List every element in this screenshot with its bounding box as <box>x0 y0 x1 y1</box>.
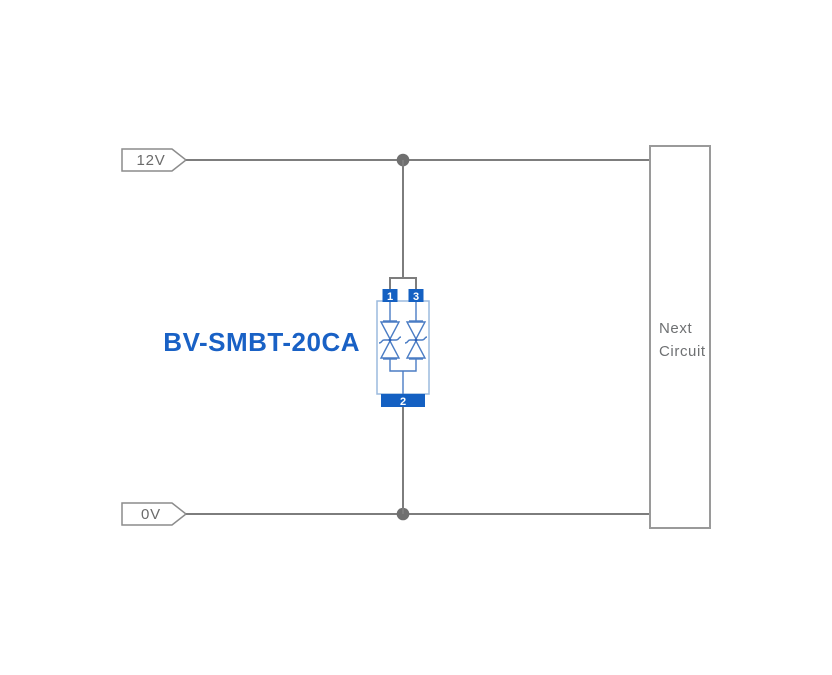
diode-center-node <box>415 339 418 342</box>
next-circuit-label-line1: Next <box>659 320 692 337</box>
diode-center-node <box>389 339 392 342</box>
pin-branch-wire <box>390 278 416 289</box>
next-circuit-label-line2: Circuit <box>659 343 706 360</box>
next-circuit-block: Next Circuit <box>650 146 710 528</box>
circuit-schematic: 12V 0V 1 3 <box>0 0 832 675</box>
bottom-rail: 0V <box>122 503 651 525</box>
component-part-number-label: BV-SMBT-20CA <box>163 327 360 357</box>
rail-tag-12v-label: 12V <box>136 152 165 169</box>
pin-1-label: 1 <box>387 291 393 303</box>
schematic-canvas: 12V 0V 1 3 <box>0 0 832 675</box>
tvs-component: 1 3 <box>377 289 429 408</box>
top-rail: 12V <box>122 149 651 171</box>
pin-3-label: 3 <box>413 291 419 303</box>
rail-tag-0v-label: 0V <box>141 506 161 523</box>
next-circuit-box <box>650 146 710 528</box>
pin-2-label: 2 <box>400 396 406 408</box>
